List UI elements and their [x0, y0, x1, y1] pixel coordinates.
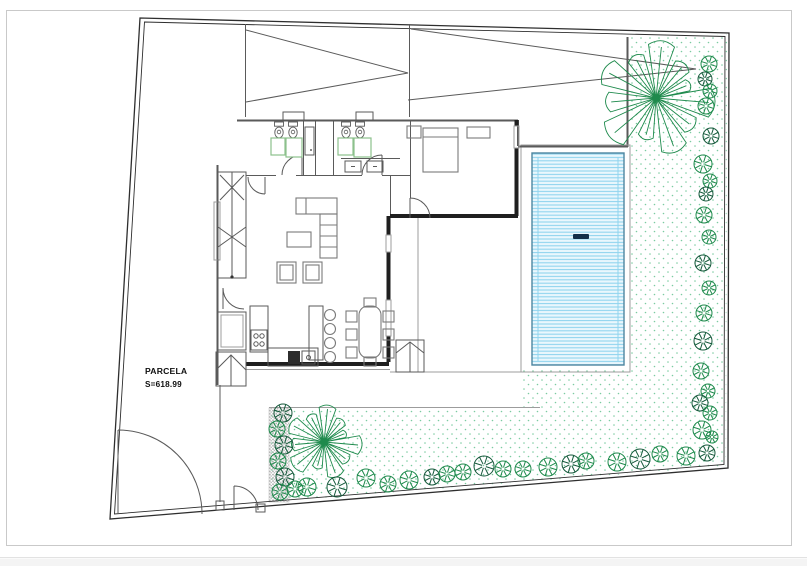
pool — [532, 153, 624, 365]
parcel-name-text: PARCELA — [145, 366, 187, 376]
shower-tray — [354, 138, 371, 157]
sink-basin — [288, 351, 300, 364]
stair-start-dot — [230, 275, 233, 278]
pool-area — [521, 145, 630, 372]
shower-tray — [338, 138, 353, 155]
site-plan-drawing: PARCELA S=618.99 — [0, 0, 807, 566]
page-edge-band — [0, 559, 807, 566]
parcel-area-text: S=618.99 — [145, 380, 182, 389]
cabinet-handle — [310, 149, 312, 151]
shower-tray — [286, 138, 302, 157]
pool-step-marker — [573, 234, 589, 239]
garden-stipple-under-pool — [523, 370, 631, 408]
shower-tray — [271, 138, 285, 155]
floor-plan-page: PARCELA S=618.99 — [0, 0, 807, 566]
